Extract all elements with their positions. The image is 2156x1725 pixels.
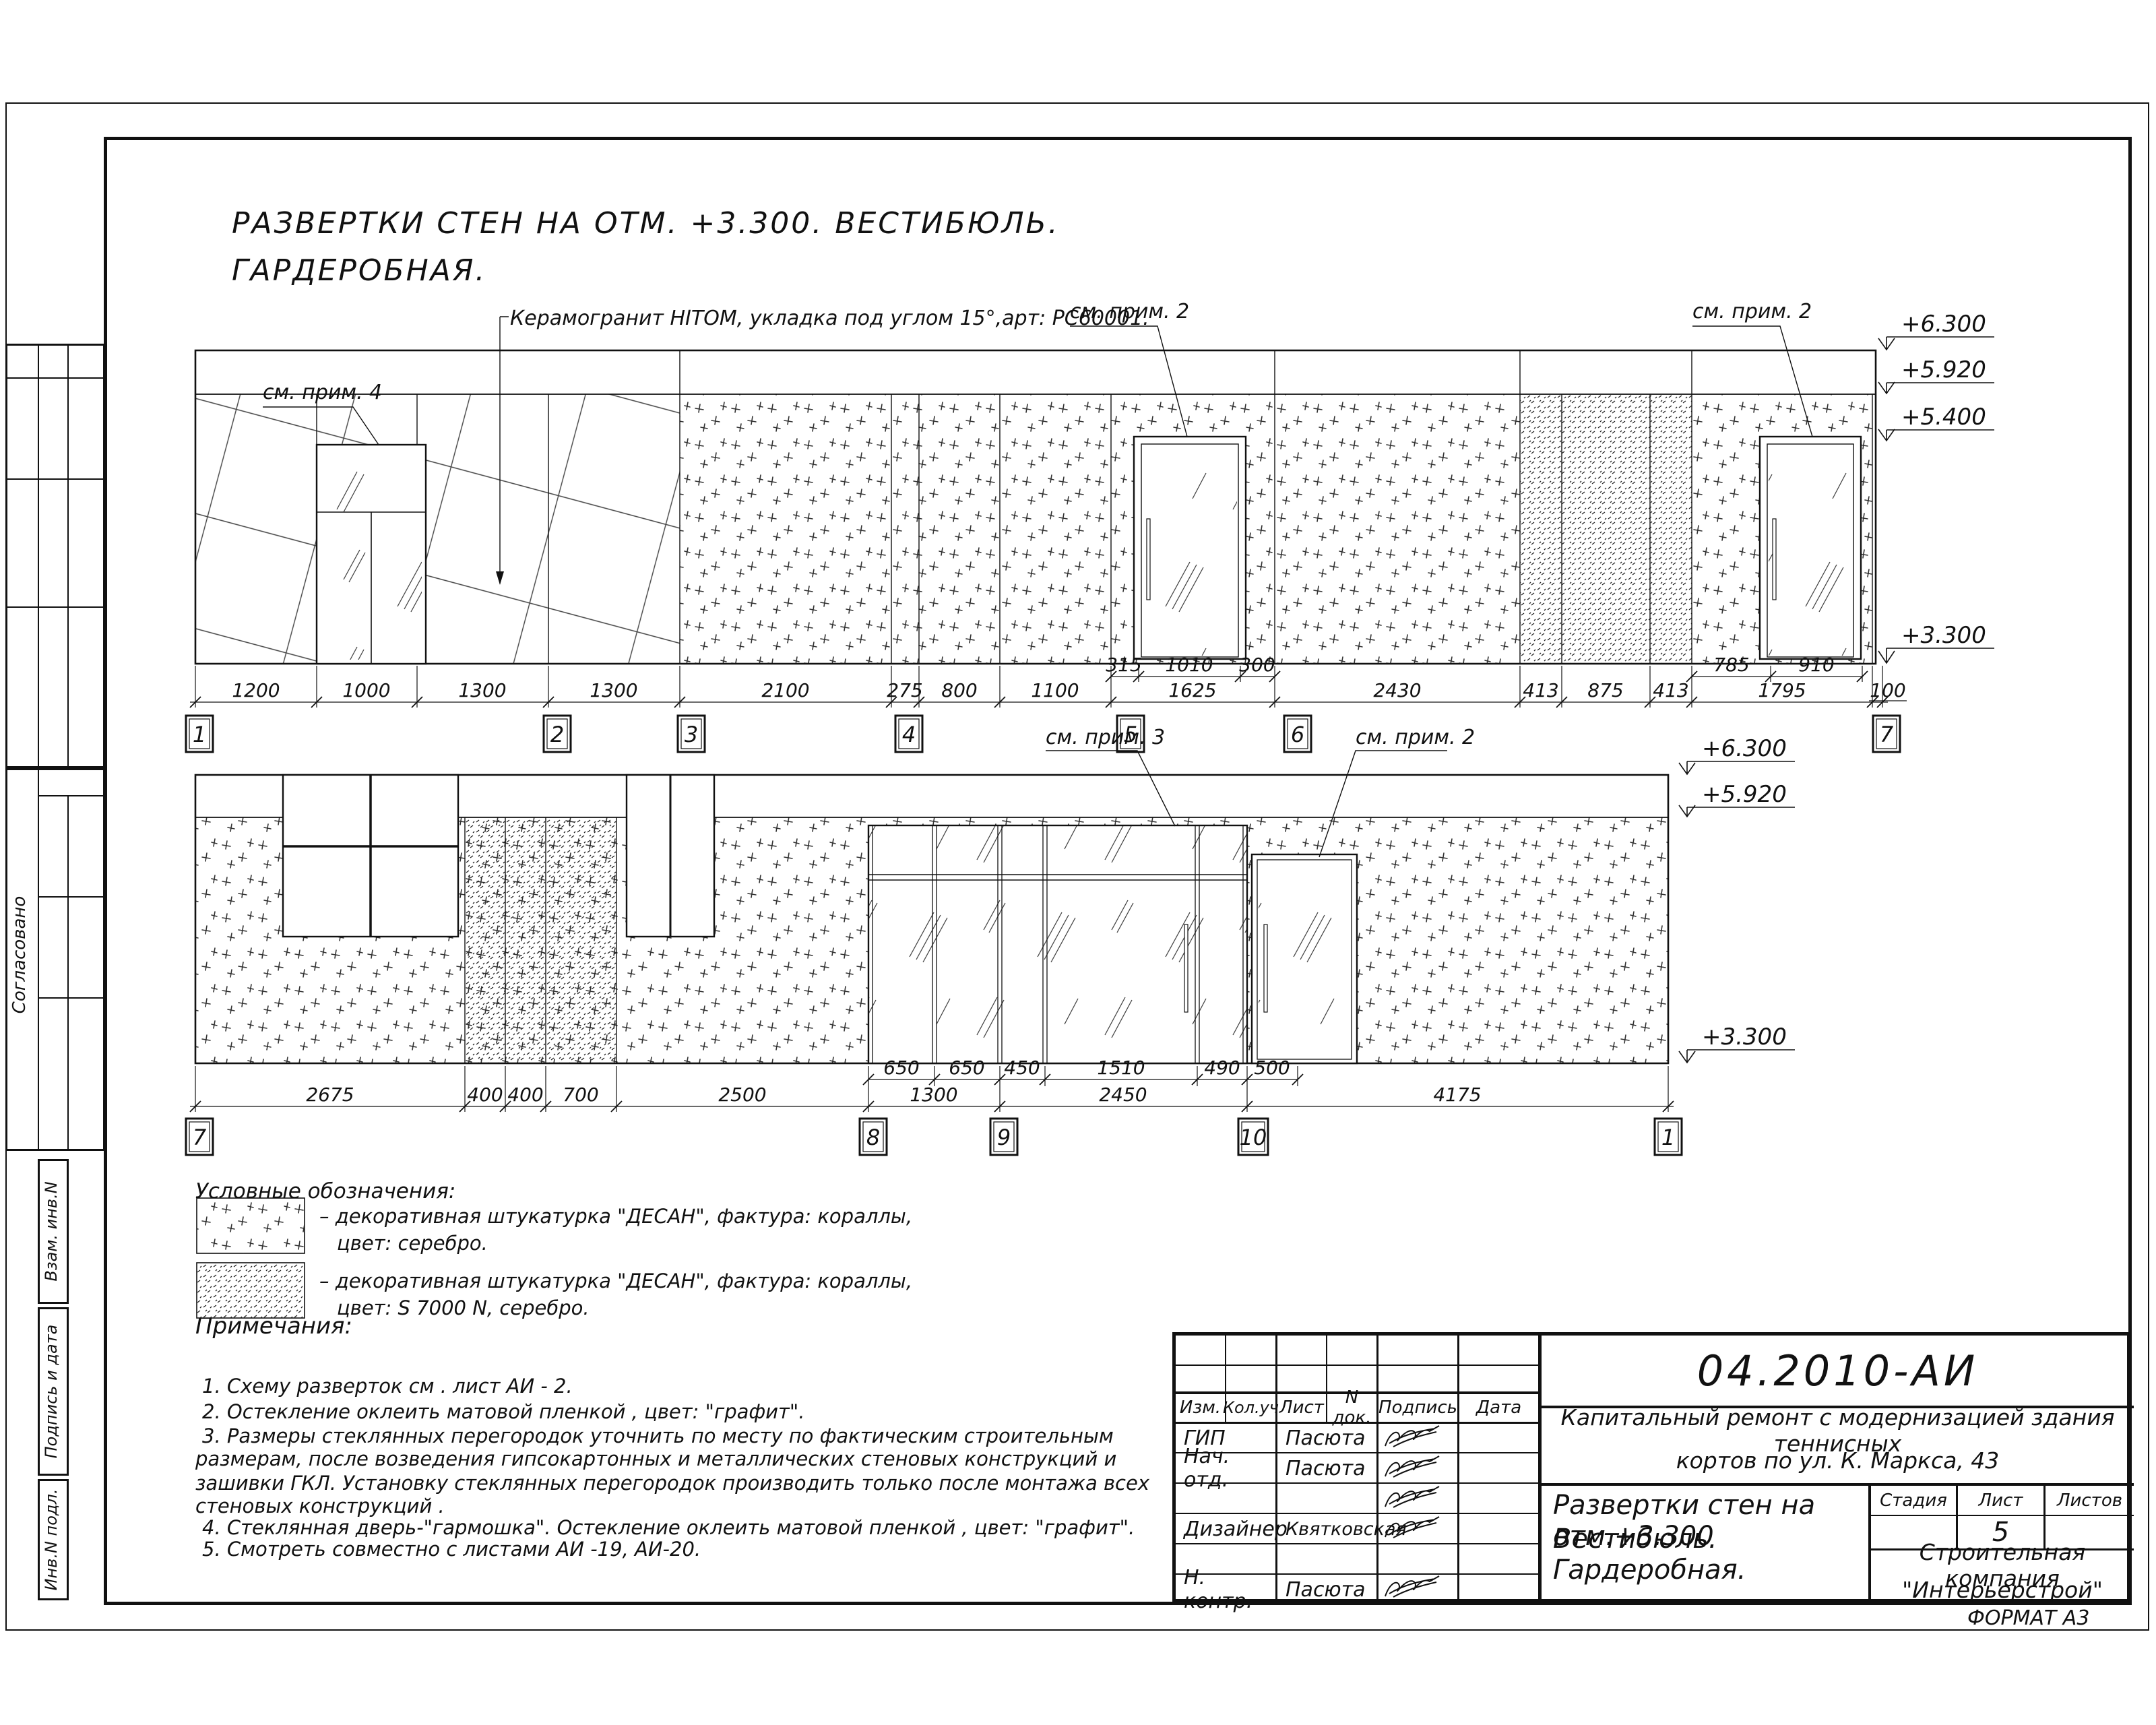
soglasovano-label: Согласовано	[9, 850, 30, 1059]
tb-header-koluch: Кол.уч	[1226, 1393, 1275, 1422]
tb-header-izm: Изм.	[1176, 1393, 1225, 1422]
tb-stage-header: Стадия	[1871, 1486, 1956, 1515]
note-line: 5. Смотреть совместно с листами АИ -19, …	[202, 1538, 701, 1561]
note-line: зашивки ГКЛ. Установку стеклянных перего…	[195, 1472, 1149, 1495]
tb-header-list: Лист	[1277, 1393, 1326, 1422]
page-title-line2: ГАРДЕРОБНАЯ.	[232, 253, 486, 288]
tb-project-line2: кортов по ул. К. Маркса, 43	[1542, 1441, 2134, 1480]
tb-company-line2: "Интерьерстрой"	[1871, 1577, 2134, 1602]
tb-role-designer: Дизайнер	[1184, 1515, 1275, 1543]
tb-sheet-title-line2: Вестибюль. Гардеробная.	[1553, 1538, 1867, 1571]
tb-list-header: Лист	[1958, 1486, 2043, 1515]
tb-role-nkontr: Н. контр.	[1184, 1575, 1275, 1604]
note-line: стеновых конструкций .	[195, 1495, 445, 1517]
legend-heading: Условные обозначения:	[195, 1179, 455, 1203]
podpis-text: Подпись и дата	[42, 1325, 61, 1459]
legend-item1-line2: цвет: серебро.	[337, 1232, 488, 1255]
drawing-sheet: Согласовано Взам. инв.N Подпись и дата И…	[0, 0, 2156, 1725]
note-line: 3. Размеры стеклянных перегородок уточни…	[202, 1424, 1114, 1447]
note-line: размерам, после возведения гипсокартонны…	[195, 1447, 1116, 1470]
format-label: ФОРМАТ А3	[1967, 1606, 2089, 1630]
tb-company-line1: Строительная компания	[1871, 1552, 2134, 1578]
tb-header-ndok: N док.	[1327, 1393, 1376, 1422]
page-title-line1: РАЗВЕРТКИ СТЕН НА ОТМ. +3.300. ВЕСТИБЮЛЬ…	[232, 206, 1060, 241]
tb-name-nachotd: Пасюта	[1286, 1454, 1376, 1482]
soglasovano-text: Согласовано	[9, 896, 30, 1014]
notes-heading: Примечания:	[195, 1313, 352, 1340]
tb-role-nachotd: Нач. отд.	[1184, 1454, 1275, 1482]
approval-grid	[5, 344, 105, 768]
note-line: 1. Схему разверток см . лист АИ - 2.	[202, 1375, 573, 1398]
inv-text: Инв.N подл.	[42, 1489, 61, 1591]
tb-header-podpis: Подпись	[1378, 1393, 1457, 1422]
note-line: 2. Остекление оклеить матовой пленкой , …	[202, 1400, 804, 1423]
inv-label: Инв.N подл.	[42, 1482, 61, 1598]
title-block: Изм. Кол.уч Лист N док. Подпись Дата ГИП…	[1172, 1332, 2130, 1602]
vzam-label: Взам. инв.N	[42, 1162, 61, 1301]
tb-listov-header: Листов	[2046, 1486, 2134, 1515]
tb-name-nkontr: Пасюта	[1286, 1575, 1376, 1604]
tb-name-designer: Квятковская	[1286, 1515, 1378, 1543]
note-line: 4. Стеклянная дверь-"гармошка". Остеклен…	[202, 1516, 1135, 1539]
podpis-label: Подпись и дата	[42, 1310, 61, 1473]
legend-item2-line2: цвет: S 7000 N, серебро.	[337, 1296, 590, 1319]
tb-doc-number: 04.2010-АИ	[1542, 1336, 2134, 1406]
tb-name-gip: Пасюта	[1286, 1424, 1376, 1452]
legend-item2-line1: – декоративная штукатурка "ДЕСАН", факту…	[319, 1269, 912, 1292]
tb-header-data: Дата	[1459, 1393, 1538, 1422]
legend-item1-line1: – декоративная штукатурка "ДЕСАН", факту…	[319, 1205, 912, 1228]
vzam-text: Взам. инв.N	[42, 1181, 61, 1281]
